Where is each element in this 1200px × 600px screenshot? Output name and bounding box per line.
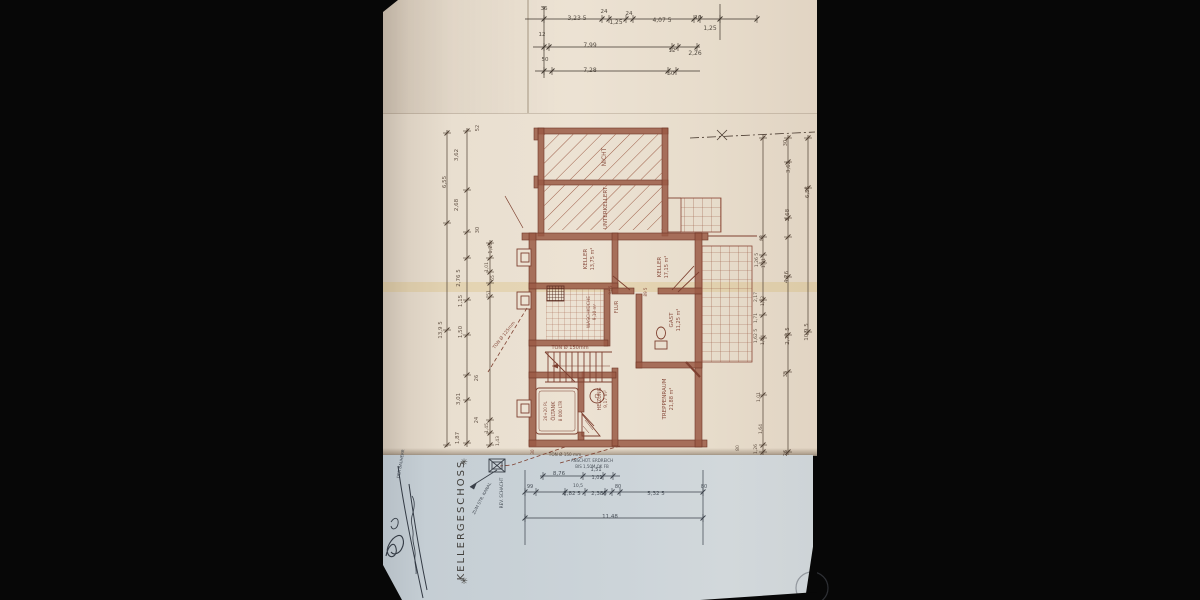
dimension-label: 50: [542, 57, 549, 63]
dimension-label: 9,17 m²: [603, 390, 609, 408]
dimension-label: 1,43: [495, 436, 501, 446]
dimension-label: 30: [530, 449, 535, 455]
dimension-label: 7,28: [583, 67, 597, 74]
dimension-label: 13,75 m²: [590, 248, 596, 271]
room-label-gast: GAST: [669, 312, 675, 328]
dimension-label: 5,32 5: [647, 491, 665, 497]
room-label-waschkueche: WASCHKÜCHE: [585, 296, 592, 328]
room-label-treppenraum: TREPPENRAUM: [662, 378, 668, 420]
dimension-label: 3,62: [786, 161, 792, 173]
dimension-label: 1,51: [590, 467, 601, 473]
title-star-top: ✳: [460, 458, 468, 468]
dimension-label: 1,04: [760, 335, 766, 345]
drain-note: TON Ø 150 mm: [548, 452, 581, 457]
dimension-label: 8 000 LTR: [558, 401, 563, 422]
dimension-label: 1,01: [591, 475, 602, 481]
plan-drawing: 363,23 5241,25244,07 5101,25127,99122,26…: [0, 0, 1200, 600]
dimension-label: 35: [783, 371, 789, 377]
dimension-label: 12: [539, 32, 546, 38]
dimension-label: 10,5: [573, 483, 583, 489]
drain-note: TON Ø 125mm: [490, 320, 517, 351]
dimension-label: 99: [527, 484, 533, 490]
dimension-label: 26+20 PL: [543, 401, 548, 421]
dimension-label: 50: [668, 71, 675, 77]
dimension-label: 80: [615, 484, 621, 490]
dimension-label: 1,26 5: [754, 253, 760, 267]
dimension-label: 17,15 m²: [664, 256, 670, 279]
title-star-bottom: ✳: [460, 577, 468, 587]
dimension-label: 1,87: [455, 431, 461, 444]
dimension-label: 2,385: [591, 491, 607, 497]
dimension-label: 1,31: [761, 258, 767, 268]
dimension-label: 51: [486, 290, 492, 296]
dimension-label: 4,26: [784, 270, 790, 283]
rev-schacht-label: REV. SCHACHT: [499, 477, 504, 508]
exterior-stair-grid: [681, 198, 721, 232]
chute-triangle: [582, 414, 600, 436]
dimension-label: 30: [783, 140, 789, 146]
dimension-label: 12: [669, 48, 676, 54]
property-line: [690, 130, 815, 140]
dimension-label: 26: [783, 450, 789, 456]
dimension-label: 65: [490, 275, 496, 281]
dimension-label: 1,64: [758, 424, 764, 434]
dimension-label: 24: [626, 11, 633, 17]
dimension-label: 52: [475, 125, 481, 131]
dimension-label: 1,01: [756, 392, 762, 402]
dimension-label: 10,9 5: [804, 323, 810, 341]
plan-title: KELLERGESCHOSS: [456, 460, 467, 581]
dimension-label: 1,62 5: [753, 329, 759, 343]
dimension-label: 80: [701, 484, 707, 490]
dimension-label: 30: [475, 227, 481, 233]
dimension-label: 1,32: [760, 296, 766, 306]
dimension-label: 2,26: [688, 50, 702, 57]
dimension-label: 1,45: [484, 423, 490, 433]
dimension-label: 1,26: [753, 444, 759, 454]
dimension-label: 24: [474, 417, 480, 423]
dimension-label: 26: [474, 375, 480, 381]
dimension-label: 21,88 m²: [669, 388, 675, 411]
dimension-label: 36: [541, 6, 548, 12]
room-label-oeltank: ÖLTANK: [550, 401, 557, 421]
dimension-label: 3,01: [456, 393, 462, 405]
room-label-nicht: NICHT: [601, 147, 608, 166]
dimension-label: 89 5: [643, 287, 648, 296]
dimension-label: 8,76: [553, 471, 566, 477]
dimension-label: 94 5: [608, 285, 613, 294]
dimension-label: 13,9 5: [438, 321, 444, 339]
toilet-fixture: [657, 327, 666, 339]
dimension-label: 3,23 5: [567, 15, 586, 22]
room-label-flur: FLUR: [614, 300, 620, 313]
signature-area: [386, 466, 427, 598]
dimension-label: 1,71: [753, 313, 759, 323]
dimension-label: 1,25: [609, 19, 623, 26]
dimension-label: 11,25 m²: [676, 309, 682, 332]
dimension-label: 2,82 5: [563, 491, 581, 497]
building-hatching: [544, 134, 752, 362]
terrace-tile-grid: [702, 246, 752, 362]
room-label-heizung: HEIZUNG: [597, 387, 603, 410]
dimension-label: 7,99: [583, 42, 597, 49]
room-label-keller-1: KELLER: [583, 249, 589, 270]
dimension-label: 1,15: [458, 294, 464, 307]
dimension-label: 2,76 5: [456, 269, 462, 287]
photo-of-floor-plan: 363,23 5241,25244,07 5101,25127,99122,26…: [0, 0, 1200, 600]
dimension-label: 1,01: [484, 262, 490, 272]
dimension-label: 80: [735, 445, 741, 451]
dimension-label: 24: [601, 9, 608, 15]
dimension-label: 2,17: [753, 292, 759, 302]
signature-handwriting: [386, 535, 403, 556]
dimension-label: 1,25: [703, 25, 717, 32]
dimension-label: 2,78 5: [785, 327, 791, 345]
dimension-label: 2,68: [454, 198, 460, 211]
dimension-label: ANSCHÜT. ERDREICH: [571, 458, 613, 463]
dimension-label: 6,55: [805, 185, 811, 198]
dimension-label: 4,07 5: [652, 17, 671, 24]
floor-drain-hatch: [547, 286, 564, 301]
bauherr-label: DER BAUHERR: [396, 449, 406, 479]
dimension-label: 1,50: [458, 325, 464, 338]
room-label-unterkellert: UNTERKELLERT: [603, 186, 609, 229]
dimension-label: 10: [695, 15, 702, 21]
dimension-label: 88: [759, 235, 765, 241]
dimension-label: 6,55: [442, 175, 448, 188]
dimension-label: 2,68: [785, 208, 791, 221]
room-label-keller-2: KELLER: [657, 257, 663, 278]
dimension-label: 3,62: [454, 149, 460, 161]
dimension-label: 9,10 m²: [592, 303, 597, 320]
dimension-label: 1,25: [488, 242, 494, 253]
drain-note: TON Ø 150mm: [550, 344, 588, 351]
dimension-label: 11,48: [602, 514, 618, 520]
